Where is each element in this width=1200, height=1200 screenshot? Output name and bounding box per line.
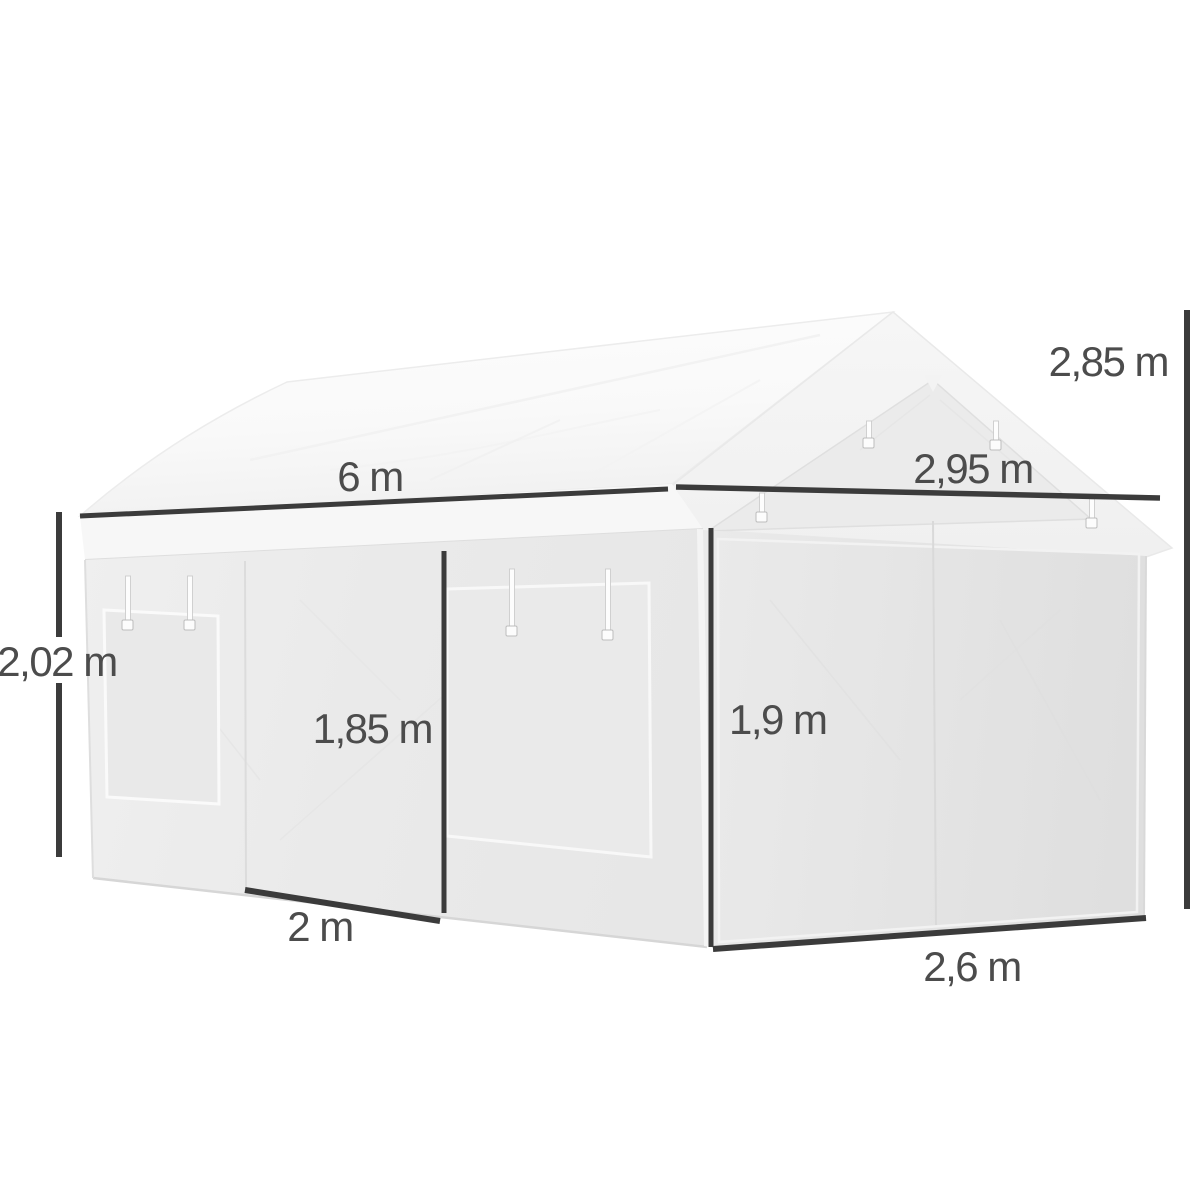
label-total-height: 2,85 m bbox=[1049, 338, 1168, 385]
label-front-door-height: 1,9 m bbox=[729, 696, 827, 743]
label-total-length: 6 m bbox=[337, 453, 403, 500]
label-wall-height: 2,02 m bbox=[0, 638, 117, 685]
tent-dimension-diagram: 6 m 2,95 m 2,85 m 2,02 m 1,85 m 1,9 m 2 … bbox=[0, 0, 1200, 1200]
label-gable-width: 2,95 m bbox=[913, 445, 1032, 492]
label-front-door-width: 2,6 m bbox=[923, 943, 1021, 990]
side-wall-seam bbox=[245, 561, 246, 888]
label-side-door-height: 1,85 m bbox=[313, 705, 432, 752]
side-door-panel bbox=[447, 583, 651, 857]
side-window-panel bbox=[104, 610, 219, 804]
label-side-door-width: 2 m bbox=[287, 903, 353, 950]
product-image-canvas: 6 m 2,95 m 2,85 m 2,02 m 1,85 m 1,9 m 2 … bbox=[0, 0, 1200, 1200]
